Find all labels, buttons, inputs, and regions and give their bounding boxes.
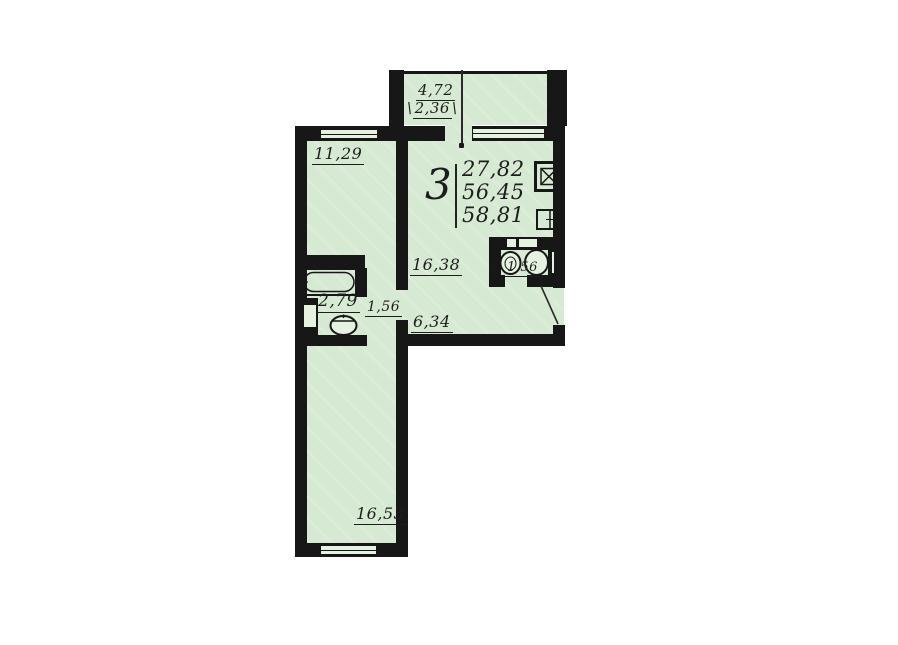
coef-slash: \ [452, 99, 458, 117]
wc-vent-slit [519, 239, 537, 247]
wall-room-divider [295, 255, 365, 268]
label-wc: 1,56 [505, 260, 540, 275]
dimension-marker-dot [459, 143, 464, 148]
legend-area-3: 58,81 [462, 204, 525, 227]
window-bottom-room [320, 545, 377, 555]
label-room-bottom: 16,53 [354, 504, 406, 523]
balcony-door-opening [445, 125, 472, 141]
coef-slash: \ [407, 99, 413, 117]
garbage-chute-icon [536, 209, 562, 235]
legend-areas: 27,82 56,45 58,81 [462, 158, 525, 227]
wc-vent-slit [507, 239, 516, 247]
wall-top-main-a [405, 126, 445, 141]
legend-area-2: 56,45 [462, 181, 525, 204]
balcony-pillar-right [547, 70, 567, 126]
legend-divider [455, 164, 457, 228]
window-balcony [472, 128, 545, 139]
label-hallway: 6,34 [411, 312, 453, 331]
legend-room-count: 3 [425, 164, 452, 206]
label-room-top: 11,29 [312, 144, 364, 163]
label-bathroom: 2,79 [316, 291, 360, 311]
wall-bottom-main [396, 334, 565, 346]
label-living: 16,38 [410, 255, 462, 274]
label-balcony-lower: \2,36\ [407, 99, 458, 117]
dimension-marker-line [461, 70, 463, 145]
toilet-icon [329, 314, 358, 341]
legend-area-1: 27,82 [462, 158, 525, 181]
balcony-parapet [404, 71, 547, 74]
label-balcony-upper: 4,72 [416, 81, 455, 99]
floor-plan: 3 27,82 56,45 58,81 4,72 \2,36\ 11,29 16… [0, 0, 898, 645]
window-top-room [320, 129, 378, 139]
wall-corridor-upper [396, 126, 408, 290]
elevator-icon [534, 161, 564, 197]
entrance-door-swing-icon [539, 284, 560, 332]
label-corridor: 1,56 [365, 299, 402, 315]
balcony-pillar-left [389, 70, 404, 126]
